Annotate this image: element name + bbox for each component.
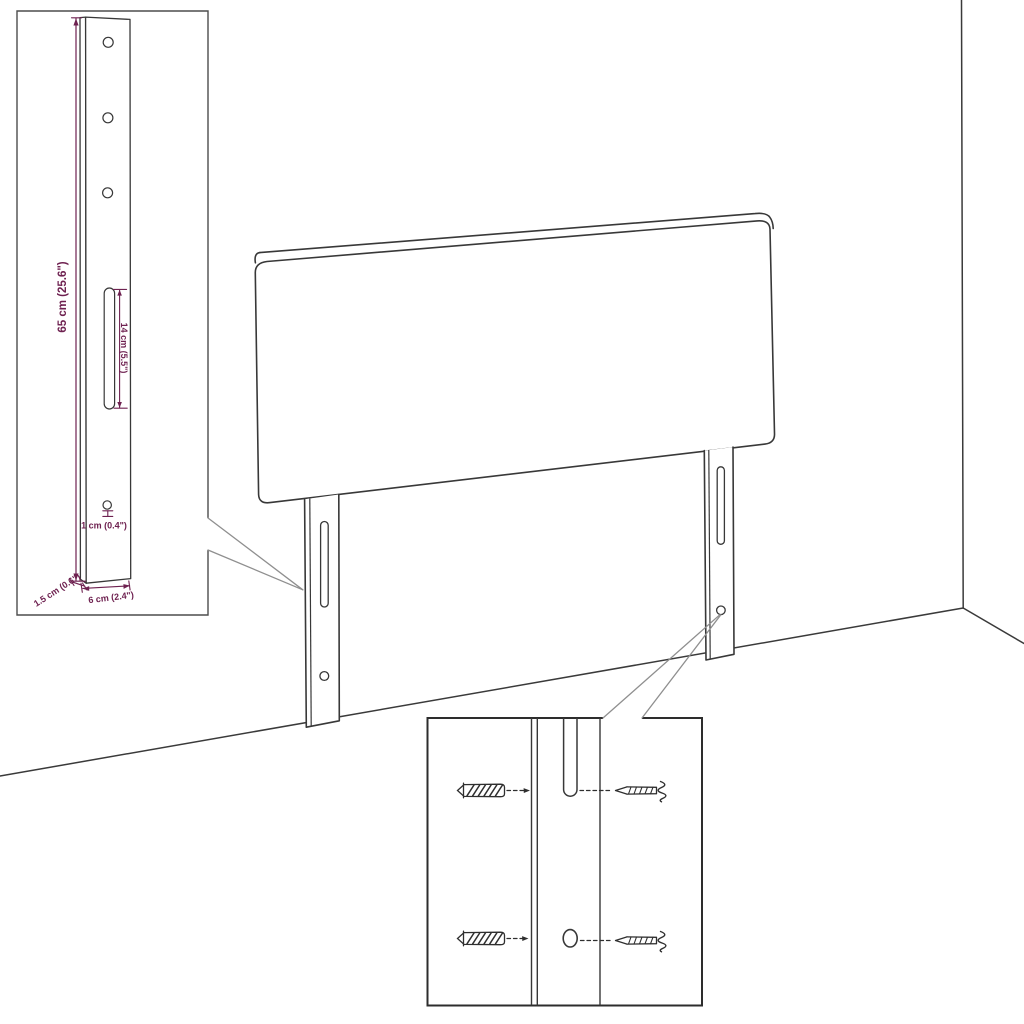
hardware-callout-line-left	[603, 615, 720, 718]
inset-callout-line-lower	[208, 550, 303, 590]
left-leg-slot	[321, 522, 329, 608]
bracket-hole-1	[103, 37, 113, 47]
headboard-assembly-diagram: 65 cm (25.6") 14 cm (5.5") 1 cm (0.4") 6…	[0, 0, 1024, 1024]
leg-bracket-drawing	[80, 17, 131, 583]
right-leg-screw-hole	[717, 606, 726, 615]
bracket-small-hole	[103, 501, 111, 509]
hole-dimension-label: 1 cm (0.4")	[81, 521, 127, 531]
detail-box-fill	[428, 718, 703, 1006]
height-dimension-label: 65 cm (25.6")	[57, 261, 69, 332]
bracket-hole-2	[103, 113, 113, 123]
slot-dimension-label: 14 cm (5.5")	[119, 323, 129, 374]
panel-front-face	[255, 221, 774, 503]
left-mounting-leg	[305, 495, 340, 728]
right-mounting-leg	[704, 447, 734, 660]
left-leg-screw-hole	[320, 672, 329, 681]
diagram-svg: 65 cm (25.6") 14 cm (5.5") 1 cm (0.4") 6…	[0, 0, 1024, 1024]
leg-detail-inset: 65 cm (25.6") 14 cm (5.5") 1 cm (0.4") 6…	[17, 11, 208, 615]
panel-top-left-curl	[255, 253, 260, 263]
inset-callout-line-upper	[208, 518, 303, 590]
right-leg-slot	[717, 467, 724, 545]
bracket-hole-3	[103, 188, 113, 198]
leg-detail-callout-lines	[208, 518, 303, 590]
hardware-callout-line-right	[642, 615, 721, 718]
wall-corner-line	[962, 0, 964, 608]
hardware-callout-lines	[603, 615, 721, 718]
floor-line-right	[963, 608, 1024, 644]
bracket-slot	[104, 288, 114, 409]
headboard-panel	[255, 213, 774, 502]
hardware-detail-box	[428, 718, 703, 1006]
